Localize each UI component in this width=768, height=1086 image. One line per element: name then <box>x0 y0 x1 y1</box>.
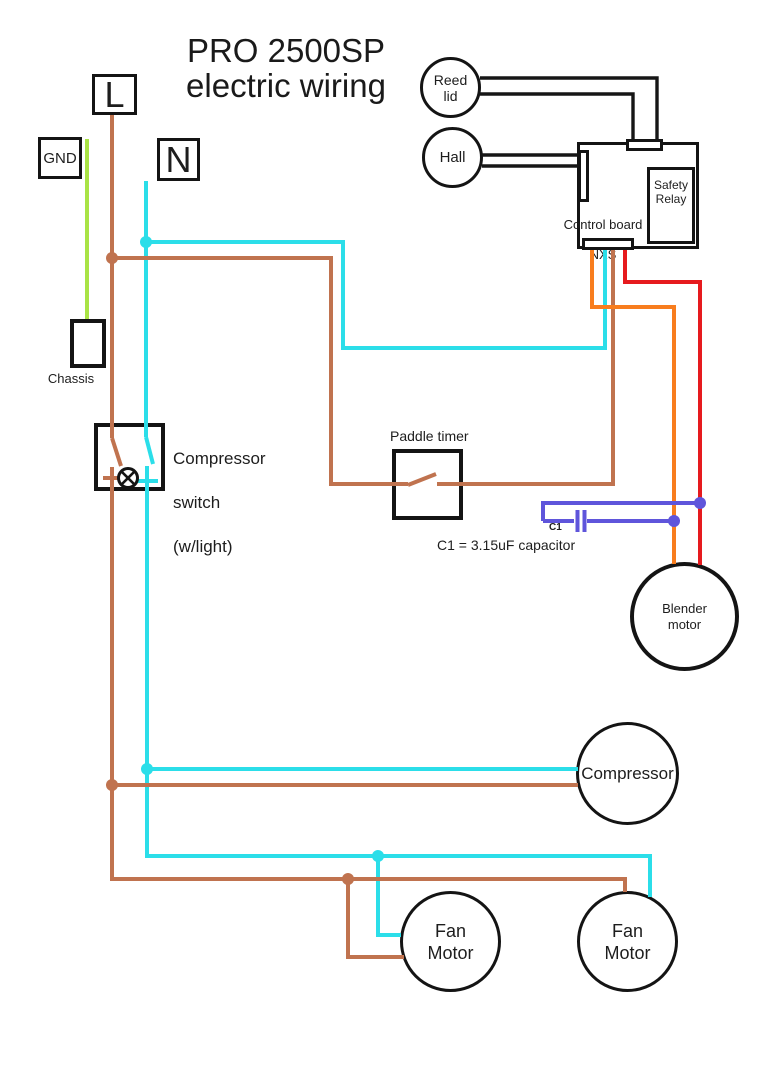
neutral-junction-dot-top <box>140 236 152 248</box>
paddle-timer-to-board <box>437 250 613 484</box>
fan-motor-right: Fan Motor <box>577 891 678 992</box>
control-board-model: NXS <box>561 247 645 262</box>
control-board-top-connector <box>626 139 663 151</box>
compressor-switch-label-3: (w/light) <box>173 536 266 558</box>
control-board-left-connector <box>578 150 589 202</box>
compressor-switch-label: Compressor switch (w/light) <box>173 426 266 580</box>
title-line1: PRO 2500SP <box>150 33 422 68</box>
neutral-junction-dot-compressor <box>141 763 153 775</box>
hall-sensor: Hall <box>422 127 483 188</box>
safety-relay-label: Safety Relay <box>650 178 692 206</box>
live-junction-dot-fan <box>342 873 354 885</box>
blender-motor-label: Blender motor <box>658 601 712 633</box>
red-blender-wire <box>625 250 700 565</box>
capacitor-junction-dot-red <box>694 497 706 509</box>
neutral-to-left-fan <box>378 856 401 935</box>
capacitor-caption: C1 = 3.15uF capacitor <box>437 537 575 553</box>
diagram-title: PRO 2500SP electric wiring <box>150 33 422 103</box>
reed-signal-wire-2 <box>480 94 633 140</box>
terminal-ground-label: GND <box>43 150 76 167</box>
fan-motor-left-label: Fan Motor <box>422 920 480 964</box>
terminal-ground-box: GND <box>38 137 82 179</box>
reed-lid-label: Reed lid <box>431 72 471 104</box>
terminal-neutral-label: N <box>166 139 192 181</box>
chassis-box <box>70 319 106 368</box>
terminal-neutral-box: N <box>157 138 200 181</box>
reed-lid-sensor: Reed lid <box>420 57 481 118</box>
paddle-timer-box <box>392 449 463 520</box>
safety-relay-box: Safety Relay <box>647 167 695 244</box>
terminal-live-label: L <box>104 74 124 116</box>
blender-motor: Blender motor <box>630 562 739 671</box>
capacitor-designator: C1 <box>549 522 562 533</box>
compressor-switch-label-1: Compressor <box>173 448 266 470</box>
fan-motor-right-label: Fan Motor <box>599 920 657 964</box>
terminal-live-box: L <box>92 74 137 115</box>
control-board-label: Control board NXS <box>561 202 645 277</box>
paddle-timer-label: Paddle timer <box>390 428 469 444</box>
wiring-diagram: PRO 2500SP electric wiring L GND N Chass… <box>0 0 768 1086</box>
compressor-switch-label-2: switch <box>173 492 266 514</box>
live-junction-dot-compressor <box>106 779 118 791</box>
capacitor-junction-dot-orange <box>668 515 680 527</box>
title-line2: electric wiring <box>150 68 422 103</box>
hall-label: Hall <box>440 149 466 166</box>
compressor-switch-box <box>94 423 165 491</box>
fan-motor-left: Fan Motor <box>400 891 501 992</box>
live-junction-dot-top <box>106 252 118 264</box>
reed-signal-wire-1 <box>480 78 657 140</box>
control-board-name: Control board <box>561 217 645 232</box>
orange-blender-wire <box>592 250 674 564</box>
neutral-junction-dot-fan <box>372 850 384 862</box>
compressor-motor: Compressor <box>576 722 679 825</box>
neutral-to-board <box>146 242 605 348</box>
chassis-label: Chassis <box>42 371 100 386</box>
live-to-left-fan <box>348 879 404 957</box>
compressor-motor-label: Compressor <box>581 764 674 784</box>
